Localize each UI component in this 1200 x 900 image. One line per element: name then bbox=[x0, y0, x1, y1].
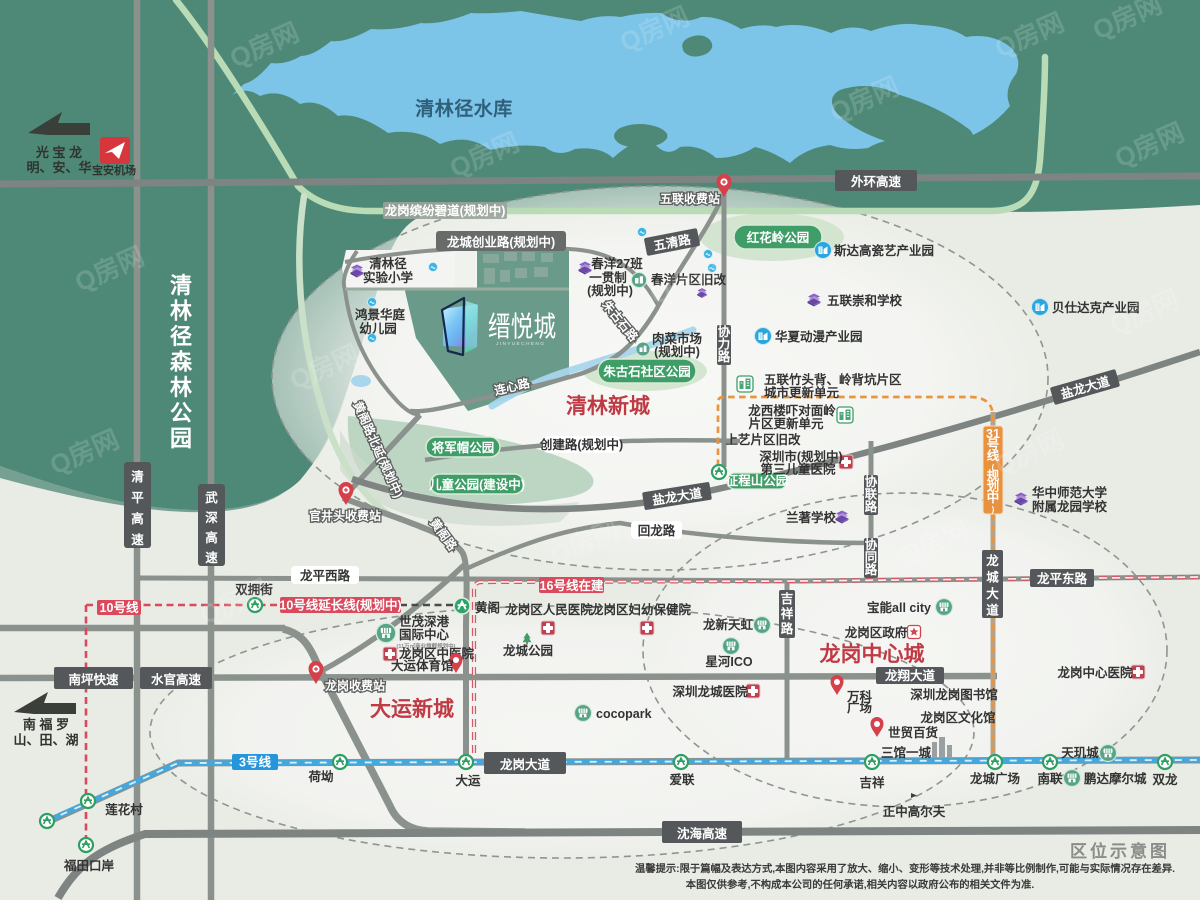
svg-text:官井头收费站: 官井头收费站 bbox=[309, 508, 381, 523]
svg-text:吉祥路: 吉祥路 bbox=[781, 591, 794, 636]
svg-text:莲花村: 莲花村 bbox=[105, 802, 143, 817]
svg-text:南联: 南联 bbox=[1037, 771, 1063, 786]
svg-text:16号线在建: 16号线在建 bbox=[540, 578, 604, 593]
svg-text:创建路(规划中): 创建路(规划中) bbox=[539, 437, 623, 452]
svg-text:南 福 罗山、田、湖: 南 福 罗山、田、湖 bbox=[13, 717, 78, 748]
svg-text:协力路: 协力路 bbox=[718, 324, 731, 364]
svg-text:缙悦城: 缙悦城 bbox=[488, 311, 556, 342]
svg-text:龙城创业路(规划中): 龙城创业路(规划中) bbox=[446, 235, 555, 250]
svg-text:回龙路: 回龙路 bbox=[638, 523, 676, 538]
svg-text:宝安机场: 宝安机场 bbox=[92, 163, 136, 177]
svg-text:3号线: 3号线 bbox=[239, 755, 271, 770]
svg-text:上艺片区旧改: 上艺片区旧改 bbox=[725, 432, 801, 447]
svg-text:龙翔大道: 龙翔大道 bbox=[884, 668, 936, 683]
svg-text:J I N Y U E C H E N G: J I N Y U E C H E N G bbox=[496, 341, 545, 346]
svg-text:协联路: 协联路 bbox=[865, 474, 878, 514]
svg-text:鹏达摩尔城: 鹏达摩尔城 bbox=[1084, 771, 1147, 786]
svg-text:福田口岸: 福田口岸 bbox=[63, 858, 115, 873]
svg-text:龙平西路: 龙平西路 bbox=[299, 568, 351, 583]
svg-text:龙岗中心城: 龙岗中心城 bbox=[820, 642, 925, 666]
svg-text:协同路: 协同路 bbox=[865, 537, 878, 577]
svg-text:龙城公园: 龙城公园 bbox=[502, 643, 553, 658]
svg-text:五联崇和学校: 五联崇和学校 bbox=[827, 293, 903, 308]
svg-text:龙岗区人民医院: 龙岗区人民医院 bbox=[504, 602, 593, 617]
svg-text:三馆一城: 三馆一城 bbox=[881, 745, 932, 760]
svg-text:大运体育馆: 大运体育馆 bbox=[391, 658, 454, 673]
svg-text:龙岗区文化馆: 龙岗区文化馆 bbox=[919, 710, 995, 725]
svg-text:正中高尔夫: 正中高尔夫 bbox=[883, 804, 946, 819]
svg-text:黄阁: 黄阁 bbox=[475, 600, 500, 615]
svg-text:龙岗区政府: 龙岗区政府 bbox=[844, 625, 908, 640]
svg-text:万科广场: 万科广场 bbox=[846, 689, 873, 715]
svg-text:荷坳: 荷坳 bbox=[307, 769, 333, 784]
svg-text:温馨提示:限于篇幅及表达方式,本图内容采用了放大、缩小、变形: 温馨提示:限于篇幅及表达方式,本图内容采用了放大、缩小、变形等技术处理,并非等比… bbox=[635, 862, 1175, 875]
svg-text:兰著学校: 兰著学校 bbox=[786, 510, 837, 525]
svg-text:斯达高瓷艺产业园: 斯达高瓷艺产业园 bbox=[834, 243, 934, 258]
svg-text:龙岗收费站: 龙岗收费站 bbox=[325, 678, 385, 693]
svg-text:清林径森林公园: 清林径森林公园 bbox=[170, 273, 193, 451]
svg-text:沈海高速: 沈海高速 bbox=[677, 826, 728, 841]
svg-text:南坪快速: 南坪快速 bbox=[68, 672, 119, 687]
svg-text:龙岗区妇幼保健院: 龙岗区妇幼保健院 bbox=[590, 602, 692, 617]
svg-text:天玑城: 天玑城 bbox=[1061, 745, 1099, 760]
svg-text:五联收费站: 五联收费站 bbox=[660, 191, 720, 206]
svg-text:世贸百货: 世贸百货 bbox=[888, 725, 939, 740]
svg-text:世茂深港国际中心: 世茂深港国际中心 bbox=[399, 614, 450, 642]
svg-text:清林新城: 清林新城 bbox=[566, 394, 650, 418]
svg-text:宝能all city: 宝能all city bbox=[867, 600, 931, 615]
svg-text:龙西楼吓对面岭片区更新单元: 龙西楼吓对面岭片区更新单元 bbox=[747, 403, 836, 431]
svg-text:10号线: 10号线 bbox=[100, 600, 139, 615]
svg-text:肉菜市场(规划中): 肉菜市场(规划中) bbox=[652, 331, 702, 359]
svg-text:清林径实验小学: 清林径实验小学 bbox=[363, 256, 414, 285]
svg-text:水官高速: 水官高速 bbox=[151, 672, 202, 687]
svg-text:深圳龙城医院: 深圳龙城医院 bbox=[672, 684, 748, 699]
svg-text:星河ICO: 星河ICO bbox=[705, 654, 753, 669]
svg-text:龙新天虹: 龙新天虹 bbox=[702, 617, 754, 632]
svg-text:深圳龙岗图书馆: 深圳龙岗图书馆 bbox=[910, 687, 998, 702]
svg-text:深圳市(规划中)第三儿童医院: 深圳市(规划中)第三儿童医院 bbox=[759, 449, 842, 477]
svg-text:清林径水库: 清林径水库 bbox=[415, 97, 513, 120]
svg-text:将军帽公园: 将军帽公园 bbox=[432, 440, 495, 455]
svg-text:吉祥: 吉祥 bbox=[859, 775, 885, 790]
svg-text:龙城广场: 龙城广场 bbox=[969, 771, 1020, 786]
svg-text:外环高速: 外环高速 bbox=[850, 174, 902, 189]
svg-text:龙岗缤纷碧道(规划中): 龙岗缤纷碧道(规划中) bbox=[384, 203, 506, 218]
svg-text:大运: 大运 bbox=[455, 773, 481, 788]
svg-text:朱古石社区公园: 朱古石社区公园 bbox=[603, 364, 691, 379]
svg-text:本图仅供参考,不构成本公司的任何承诺,相关内容以政府公布的相: 本图仅供参考,不构成本公司的任何承诺,相关内容以政府公布的相关文件为准. bbox=[686, 878, 1035, 891]
svg-text:10号线延长线(规划中): 10号线延长线(规划中) bbox=[279, 598, 401, 613]
svg-text:华中师范大学附属龙园学校: 华中师范大学附属龙园学校 bbox=[1032, 485, 1108, 514]
svg-text:华夏动漫产业园: 华夏动漫产业园 bbox=[775, 329, 863, 344]
svg-text:红花岭公园: 红花岭公园 bbox=[747, 230, 810, 245]
svg-text:双龙: 双龙 bbox=[1151, 772, 1178, 787]
svg-text:儿童公园(建设中): 儿童公园(建设中) bbox=[428, 477, 525, 492]
svg-text:龙岗中心医院: 龙岗中心医院 bbox=[1056, 665, 1133, 680]
svg-text:区位示意图: 区位示意图 bbox=[1070, 841, 1170, 861]
svg-text:大运新城: 大运新城 bbox=[370, 697, 454, 721]
svg-text:cocopark: cocopark bbox=[596, 707, 652, 721]
svg-text:龙平东路: 龙平东路 bbox=[1036, 571, 1088, 586]
svg-text:龙岗大道: 龙岗大道 bbox=[499, 757, 551, 772]
svg-text:光 宝 龙明、安、华: 光 宝 龙明、安、华 bbox=[26, 145, 91, 175]
svg-text:爱联: 爱联 bbox=[669, 772, 695, 787]
